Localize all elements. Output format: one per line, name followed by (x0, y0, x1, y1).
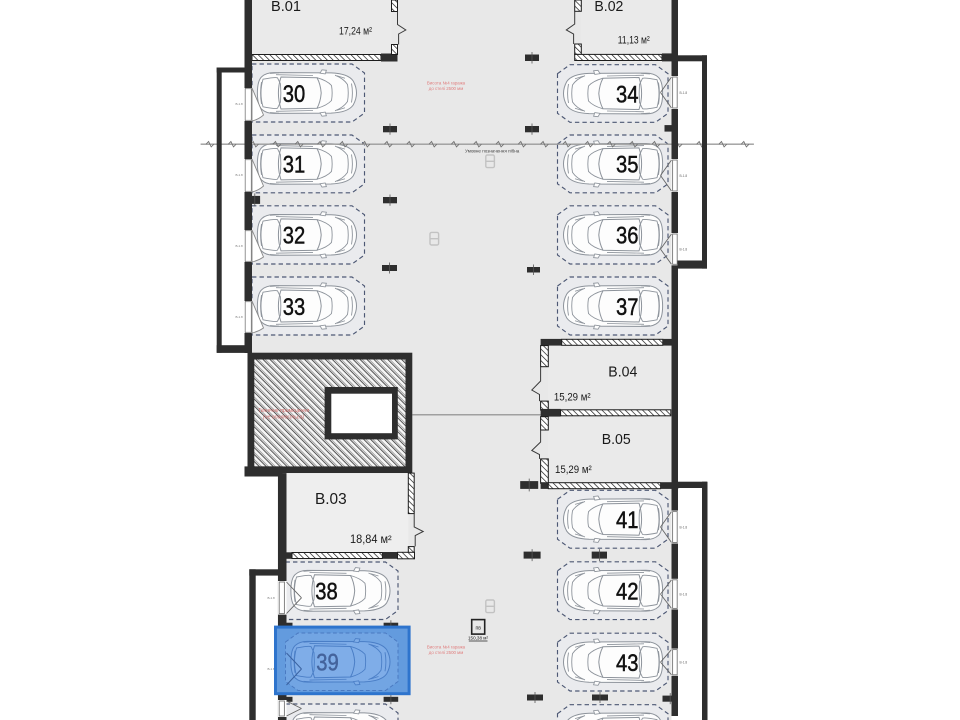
svg-text:35: 35 (616, 152, 639, 179)
svg-text:42: 42 (616, 579, 639, 606)
svg-text:11,13 м²: 11,13 м² (618, 35, 650, 47)
svg-text:Висота №4 гаража: Висота №4 гаража (427, 81, 466, 86)
svg-text:Умовне позначення пібна: Умовне позначення пібна (465, 149, 520, 154)
svg-text:В-1.8: В-1.8 (680, 526, 688, 530)
svg-text:B.04: B.04 (608, 365, 637, 381)
svg-text:43: 43 (616, 650, 639, 677)
svg-text:39: 39 (316, 650, 339, 677)
svg-text:В-1.8: В-1.8 (680, 91, 688, 95)
svg-text:41: 41 (616, 507, 639, 534)
svg-text:15,29 м²: 15,29 м² (554, 392, 591, 404)
svg-text:до стелі 2500 мм: до стелі 2500 мм (429, 650, 463, 655)
svg-text:В-1.8: В-1.8 (680, 593, 688, 597)
svg-text:B.01: B.01 (271, 0, 301, 15)
svg-text:(не опалюється): (не опалюється) (263, 415, 304, 421)
svg-text:15,29 м²: 15,29 м² (555, 464, 592, 476)
svg-text:В-1.8: В-1.8 (236, 102, 244, 106)
svg-text:38: 38 (315, 579, 338, 606)
svg-text:18,84 м²: 18,84 м² (350, 534, 392, 546)
svg-text:37: 37 (616, 294, 639, 321)
svg-text:Висота №4 гаража: Висота №4 гаража (427, 645, 466, 650)
svg-text:В-1.8: В-1.8 (268, 667, 276, 671)
svg-text:до стелі 2500 мм: до стелі 2500 мм (429, 86, 463, 91)
svg-text:пв: пв (476, 626, 482, 632)
svg-text:33: 33 (283, 294, 306, 321)
svg-text:34: 34 (616, 81, 639, 108)
svg-text:В-1.8: В-1.8 (236, 315, 244, 319)
svg-text:36: 36 (616, 223, 639, 250)
svg-text:B.05: B.05 (602, 432, 631, 448)
svg-text:150,38 м²: 150,38 м² (468, 636, 488, 641)
svg-text:30: 30 (283, 81, 306, 108)
svg-text:В-1.8: В-1.8 (680, 661, 688, 665)
svg-text:32: 32 (283, 223, 306, 250)
svg-text:31: 31 (283, 152, 306, 179)
svg-text:17,24 м²: 17,24 м² (339, 26, 372, 38)
svg-text:В-1.8: В-1.8 (680, 248, 688, 252)
svg-text:Технічне приміщення: Технічне приміщення (258, 408, 309, 414)
svg-text:B.03: B.03 (315, 491, 347, 508)
svg-text:В-1.8: В-1.8 (680, 174, 688, 178)
svg-text:В-1.8: В-1.8 (236, 173, 244, 177)
svg-text:В-1.8: В-1.8 (236, 244, 244, 248)
svg-text:B.02: B.02 (594, 0, 623, 15)
svg-text:В-1.8: В-1.8 (268, 596, 276, 600)
